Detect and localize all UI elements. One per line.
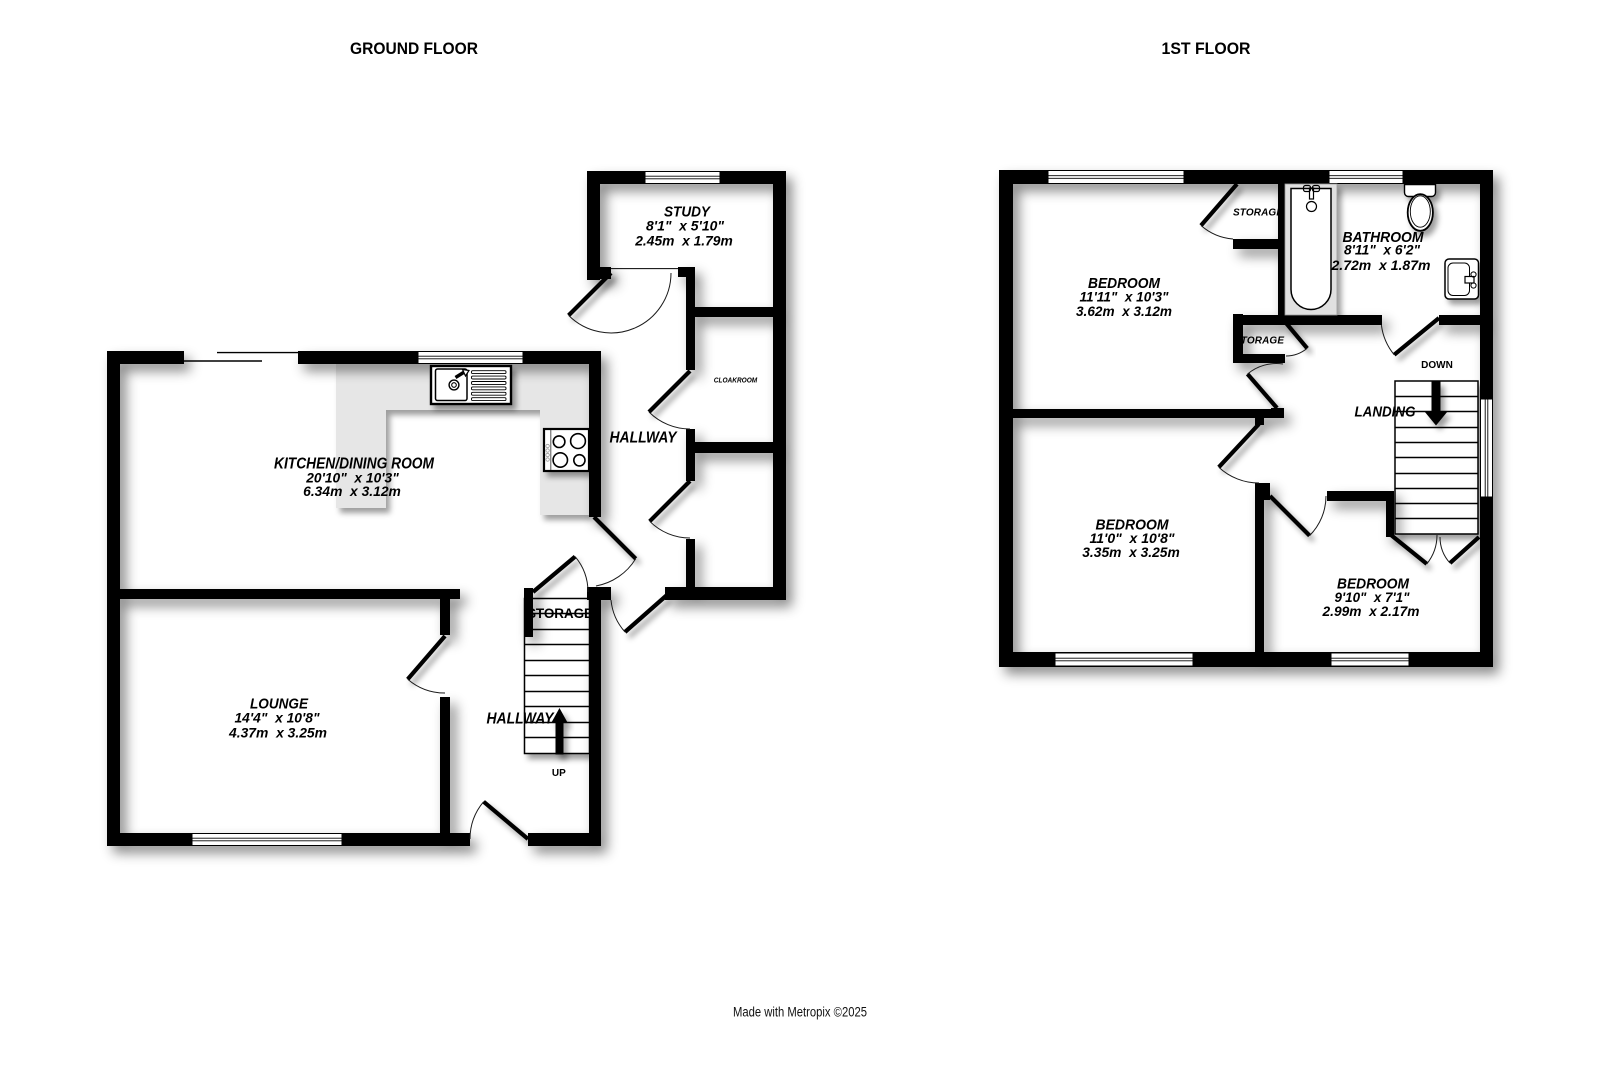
svg-text:HALLWAY: HALLWAY: [610, 430, 678, 447]
svg-text:HALLWAY: HALLWAY: [487, 711, 555, 728]
svg-text:2.45m x 1.79m: 2.45m x 1.79m: [634, 233, 732, 249]
svg-text:Made with Metropix ©2025: Made with Metropix ©2025: [733, 1005, 867, 1020]
svg-text:STORAGE: STORAGE: [527, 606, 593, 621]
svg-text:2.72m x 1.87m: 2.72m x 1.87m: [1330, 257, 1430, 273]
svg-text:14'4" x 10'8": 14'4" x 10'8": [235, 710, 320, 726]
svg-text:3.62m x 3.12m: 3.62m x 3.12m: [1076, 303, 1172, 319]
svg-text:DOWN: DOWN: [1421, 360, 1453, 371]
svg-text:STORAGE: STORAGE: [1233, 208, 1283, 219]
svg-text:8'1" x 5'10": 8'1" x 5'10": [646, 218, 724, 234]
svg-text:1ST FLOOR: 1ST FLOOR: [1162, 40, 1251, 58]
svg-text:6.34m x 3.12m: 6.34m x 3.12m: [303, 483, 401, 499]
svg-text:GROUND FLOOR: GROUND FLOOR: [350, 40, 478, 58]
svg-text:4.37m x 3.25m: 4.37m x 3.25m: [228, 725, 327, 741]
svg-text:2.99m x 2.17m: 2.99m x 2.17m: [1322, 603, 1420, 619]
svg-text:UP: UP: [552, 768, 566, 779]
svg-text:8'11" x 6'2": 8'11" x 6'2": [1344, 242, 1420, 258]
svg-text:LANDING: LANDING: [1355, 405, 1416, 421]
svg-text:3.35m x 3.25m: 3.35m x 3.25m: [1082, 544, 1180, 560]
svg-text:CLOAKROOM: CLOAKROOM: [714, 376, 758, 385]
